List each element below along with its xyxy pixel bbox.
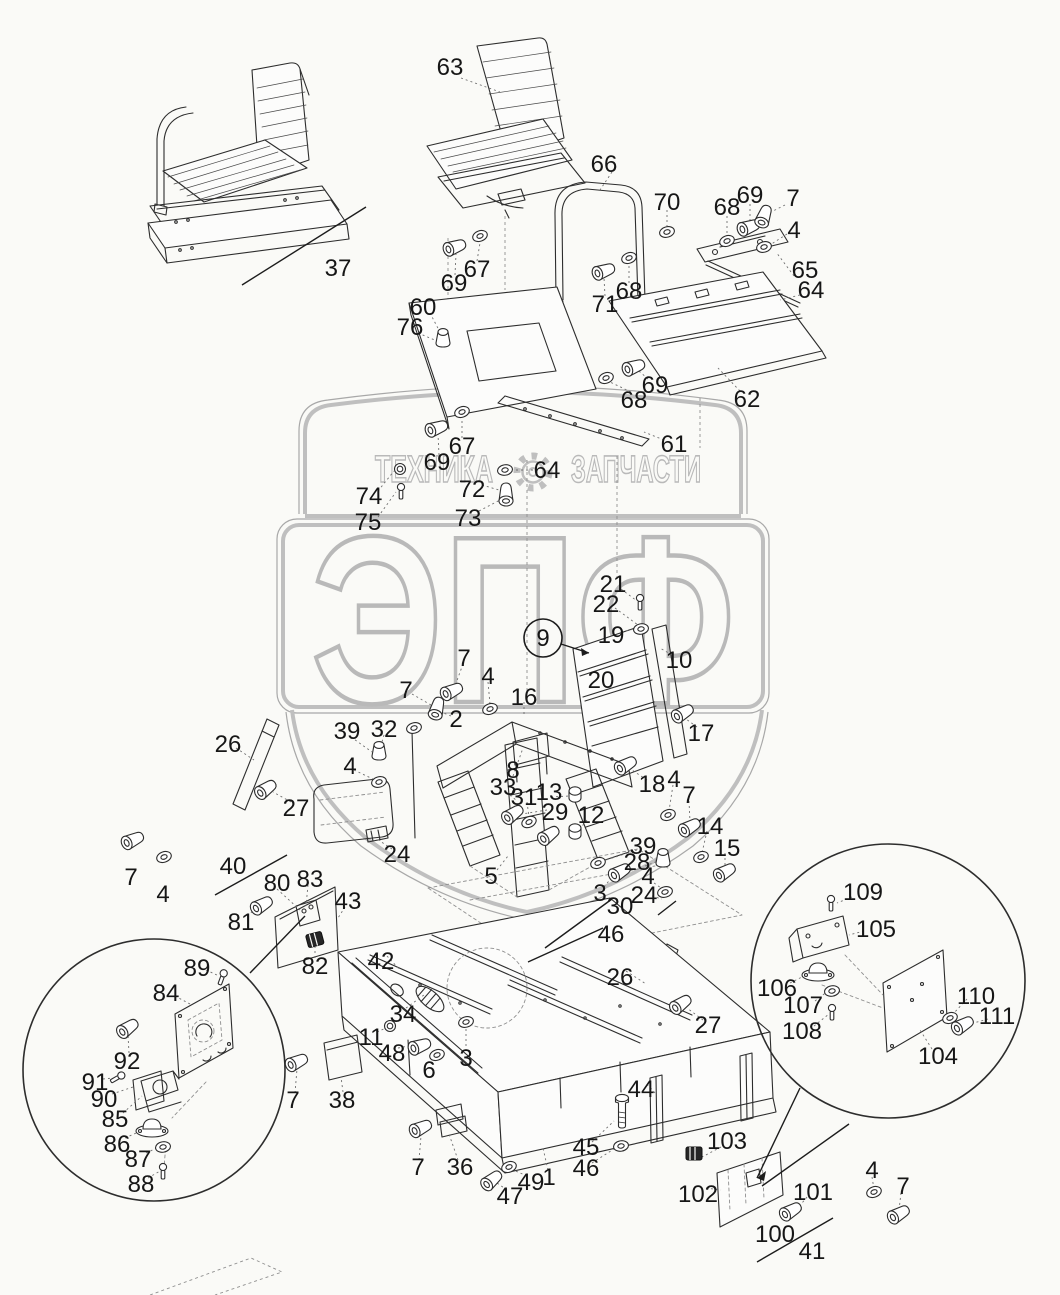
- part-label-101: 101: [793, 1179, 833, 1206]
- washer-icon: [589, 856, 607, 871]
- bottom-panel: [717, 1152, 783, 1227]
- part-label-37: 37: [325, 255, 352, 282]
- part-label-17: 17: [688, 720, 715, 747]
- conn-icon: [305, 931, 324, 948]
- ring-icon: [395, 464, 406, 475]
- bolt-icon: [441, 237, 467, 258]
- part-label-80: 80: [264, 870, 291, 897]
- part-label-7: 7: [411, 1154, 424, 1181]
- part-label-9: 9: [536, 625, 549, 652]
- knob-icon: [656, 849, 670, 867]
- part-label-32: 32: [371, 716, 398, 743]
- seat-base-plate: [409, 287, 596, 429]
- washer-icon: [155, 1141, 172, 1154]
- washer-icon: [155, 850, 173, 865]
- knob-icon: [436, 329, 450, 347]
- part-label-24: 24: [384, 841, 411, 868]
- part-label-26: 26: [607, 964, 634, 991]
- part-label-62: 62: [734, 386, 761, 413]
- part-label-46: 46: [598, 921, 625, 948]
- part-label-5: 5: [484, 863, 497, 890]
- part-label-7: 7: [896, 1173, 909, 1200]
- part-label-68: 68: [616, 278, 643, 305]
- side-plate: [324, 1035, 362, 1080]
- bolt-icon: [590, 261, 616, 282]
- part-label-6: 6: [422, 1057, 435, 1084]
- part-label-18: 18: [639, 771, 666, 798]
- part-label-22: 22: [593, 591, 620, 618]
- part-label-100: 100: [755, 1221, 795, 1248]
- part-label-31: 31: [511, 784, 538, 811]
- part-label-89: 89: [184, 955, 211, 982]
- part-label-49: 49: [518, 1169, 545, 1196]
- part-label-4: 4: [667, 766, 680, 793]
- part-label-81: 81: [228, 909, 255, 936]
- part-label-82: 82: [302, 953, 329, 980]
- part-label-67: 67: [449, 433, 476, 460]
- part-label-7: 7: [457, 645, 470, 672]
- part-label-29: 29: [542, 799, 569, 826]
- part-label-69: 69: [424, 449, 451, 476]
- part-label-15: 15: [714, 835, 741, 862]
- part-label-74: 74: [356, 483, 383, 510]
- part-label-69: 69: [441, 270, 468, 297]
- part-label-68: 68: [621, 387, 648, 414]
- detail-circle-left: [23, 939, 285, 1201]
- part-label-67: 67: [464, 256, 491, 283]
- part-label-83: 83: [297, 866, 324, 893]
- part-label-75: 75: [355, 509, 382, 536]
- part-label-109: 109: [843, 879, 883, 906]
- part-label-3: 3: [459, 1045, 472, 1072]
- part-label-26: 26: [215, 731, 242, 758]
- part-label-92: 92: [114, 1048, 141, 1075]
- pin-icon: [216, 969, 228, 986]
- mount-icon: [802, 963, 834, 981]
- bolt-icon: [119, 829, 146, 851]
- bolt-icon: [499, 483, 513, 506]
- part-label-30: 30: [607, 893, 634, 920]
- part-label-105: 105: [856, 916, 896, 943]
- washer-icon: [865, 1185, 883, 1200]
- part-label-104: 104: [918, 1043, 958, 1070]
- part-label-36: 36: [447, 1154, 474, 1181]
- washer-icon: [620, 251, 638, 266]
- part-label-34: 34: [390, 1001, 417, 1028]
- washer-icon: [692, 850, 710, 865]
- tank-bracket: [314, 779, 393, 843]
- seat-assembly-left: [148, 63, 349, 263]
- part-label-64: 64: [798, 277, 825, 304]
- part-label-27: 27: [283, 795, 310, 822]
- part-label-103: 103: [707, 1128, 747, 1155]
- bolt-icon: [885, 1202, 912, 1226]
- washer-icon: [718, 234, 736, 249]
- bolt-icon: [407, 1117, 434, 1139]
- part-label-73: 73: [455, 505, 482, 532]
- bushing-icon: [569, 787, 581, 802]
- part-label-10: 10: [666, 647, 693, 674]
- part-label-7: 7: [124, 864, 137, 891]
- part-label-1: 1: [542, 1164, 555, 1191]
- part-label-102: 102: [678, 1181, 718, 1208]
- part-label-85: 85: [102, 1106, 129, 1133]
- washer-icon: [613, 1140, 630, 1153]
- parts-diagram-page: ТЕХНИКА ЗАПЧАСТИ ЭПФ: [0, 0, 1060, 1295]
- part-label-87: 87: [125, 1146, 152, 1173]
- part-label-19: 19: [598, 622, 625, 649]
- part-label-24: 24: [631, 882, 658, 909]
- part-label-16: 16: [511, 684, 538, 711]
- part-label-12: 12: [578, 802, 605, 829]
- part-label-71: 71: [592, 291, 619, 318]
- part-label-63: 63: [437, 54, 464, 81]
- part-label-2: 2: [449, 706, 462, 733]
- part-label-41: 41: [799, 1238, 826, 1265]
- part-label-38: 38: [329, 1087, 356, 1114]
- part-label-84: 84: [153, 980, 180, 1007]
- part-label-27: 27: [695, 1012, 722, 1039]
- washer-icon: [659, 808, 677, 823]
- conn-icon: [686, 1147, 702, 1160]
- exploded-parts-diagram: ТЕХНИКА ЗАПЧАСТИ ЭПФ: [0, 0, 1060, 1295]
- part-label-66: 66: [591, 151, 618, 178]
- bolt-icon: [283, 1051, 310, 1073]
- part-label-44: 44: [628, 1076, 655, 1103]
- part-label-4: 4: [787, 217, 800, 244]
- part-label-61: 61: [661, 431, 688, 458]
- part-label-108: 108: [782, 1018, 822, 1045]
- washer-icon: [471, 229, 489, 244]
- part-label-42: 42: [368, 948, 395, 975]
- part-label-70: 70: [654, 189, 681, 216]
- part-label-4: 4: [156, 881, 169, 908]
- washer-icon: [656, 885, 673, 899]
- part-label-7: 7: [682, 782, 695, 809]
- part-label-69: 69: [737, 182, 764, 209]
- part-label-88: 88: [128, 1171, 155, 1198]
- part-label-72: 72: [459, 476, 486, 503]
- part-label-40: 40: [220, 853, 247, 880]
- part-label-3: 3: [593, 880, 606, 907]
- bolt-icon: [114, 1016, 141, 1041]
- part-label-111: 111: [979, 1003, 1015, 1030]
- part-label-4: 4: [343, 753, 356, 780]
- pin-icon: [827, 895, 834, 911]
- part-label-39: 39: [334, 718, 361, 745]
- pin-icon: [159, 1163, 166, 1179]
- washer-icon: [370, 775, 387, 789]
- part-label-4: 4: [481, 663, 494, 690]
- part-label-4: 4: [865, 1157, 878, 1184]
- bolt-icon: [535, 823, 562, 848]
- washer-icon: [658, 225, 675, 239]
- pin-icon: [828, 1004, 835, 1020]
- part-label-76: 76: [397, 314, 424, 341]
- washer-icon: [497, 464, 514, 477]
- part-label-43: 43: [335, 888, 362, 915]
- washer-icon: [520, 814, 538, 830]
- washer-icon: [824, 985, 841, 998]
- mount-icon: [136, 1119, 168, 1137]
- part-label-46: 46: [573, 1155, 600, 1182]
- knob-icon: [372, 742, 386, 760]
- part-label-64: 64: [534, 457, 561, 484]
- part-label-7: 7: [399, 677, 412, 704]
- part-label-48: 48: [379, 1040, 406, 1067]
- part-label-107: 107: [783, 992, 823, 1019]
- part-label-7: 7: [286, 1087, 299, 1114]
- part-label-20: 20: [588, 667, 615, 694]
- part-label-7: 7: [786, 185, 799, 212]
